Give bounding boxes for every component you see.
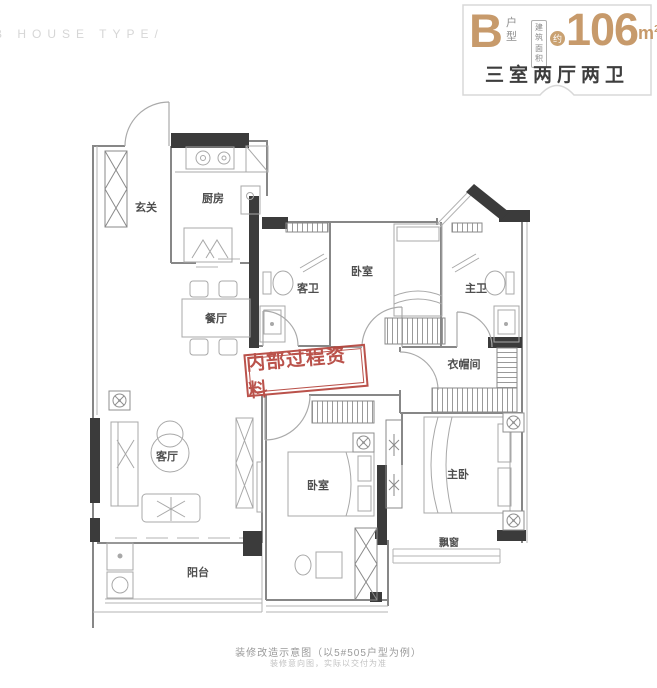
bed-top-bedroom xyxy=(394,224,442,316)
room-label-living: 客厅 xyxy=(155,449,178,463)
area-unit-m: m xyxy=(638,23,654,43)
area-label-line1: 建筑 xyxy=(535,23,543,44)
area-value: 106 xyxy=(566,9,638,52)
room-label-bedroom-bottom: 卧室 xyxy=(307,478,329,492)
unit-info-card: B 户 型 建筑 面积 约 106 m2 三室两厅两卫 xyxy=(462,4,652,96)
room-label-bedroom-top: 卧室 xyxy=(351,264,373,278)
approx-badge: 约 xyxy=(550,31,565,46)
balcony-appliances xyxy=(107,543,133,598)
room-label-balcony: 阳台 xyxy=(187,565,209,579)
room-label-guest-bath: 客卫 xyxy=(296,281,319,295)
layout-summary: 三室两厅两卫 xyxy=(462,60,652,87)
footer-caption-line1: 装修改造示意图（以5#505户型为例） xyxy=(0,644,657,659)
room-label-master-bedroom: 主卧 xyxy=(447,467,469,481)
floorplan-page: B HOUSE TYPE/ xyxy=(0,0,657,688)
unit-type-label: 户 型 xyxy=(506,17,517,45)
room-label-entry: 玄关 xyxy=(135,200,157,214)
master-bath-fixtures xyxy=(452,254,519,342)
footer-caption-line2: 装修意向图，实际以交付为准 xyxy=(0,658,657,669)
watermark-stamp: 内部过程资料 xyxy=(243,344,368,397)
room-label-closet: 衣帽间 xyxy=(448,357,481,371)
unit-info-row: B 户 型 建筑 面积 约 106 m2 xyxy=(469,9,648,59)
room-label-dining: 餐厅 xyxy=(204,311,227,325)
room-label-master-bath: 主卫 xyxy=(465,281,487,295)
bottom-bedroom-furniture xyxy=(288,452,374,578)
watermark-text: 内部过程资料 xyxy=(245,338,367,402)
room-label-kitchen: 厨房 xyxy=(202,191,224,205)
living-room-furniture xyxy=(111,418,262,522)
unit-type-letter: B xyxy=(469,9,503,54)
area-unit: m2 xyxy=(638,23,657,44)
master-bed xyxy=(424,417,511,513)
unit-type-char1: 户 xyxy=(506,17,517,31)
room-label-bay-window: 飘窗 xyxy=(439,536,459,549)
unit-type-char2: 型 xyxy=(506,31,517,45)
